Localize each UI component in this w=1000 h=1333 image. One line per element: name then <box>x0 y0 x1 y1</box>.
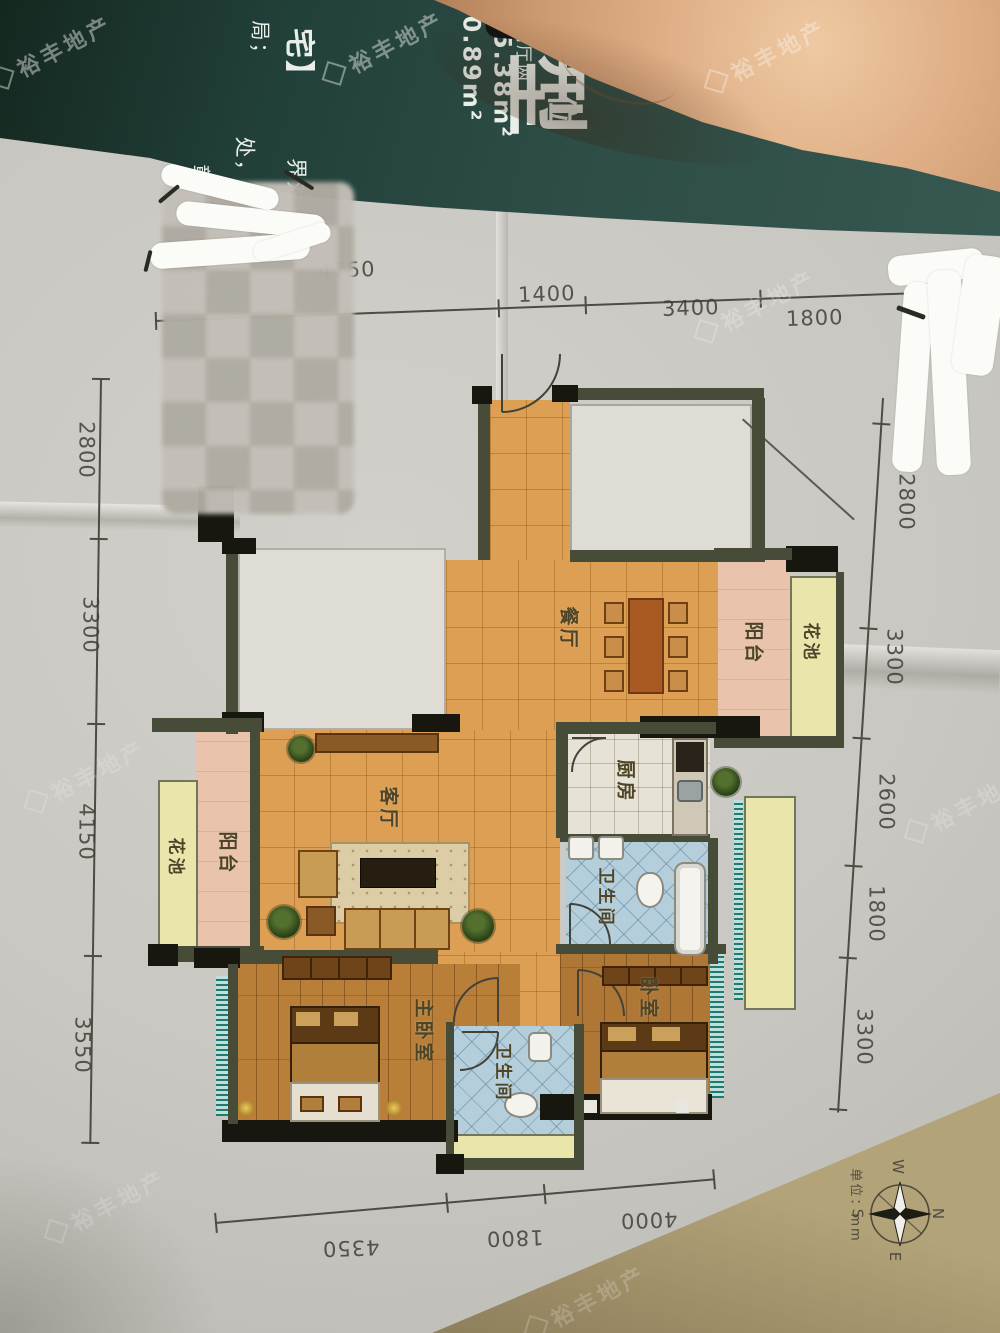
photo-of-floorplan-flyer: 彰显大家风范。 处，把酒言欢； 界对话无边园景； 局； 宅】 0.89m² 15… <box>0 0 1000 1333</box>
wardrobe <box>282 956 392 980</box>
wall <box>250 728 260 960</box>
label-bath-lower: 卫生间 <box>493 1043 518 1103</box>
bedroom-window <box>710 948 724 1098</box>
dim-right-2800: 2800 <box>895 473 919 530</box>
dim-right-2600: 2600 <box>875 773 899 830</box>
door-entrance-arc <box>500 352 562 414</box>
wall <box>556 722 568 838</box>
vanity-basin <box>568 836 594 860</box>
pillow <box>652 1027 680 1041</box>
coffee-table <box>360 858 436 888</box>
bed-blanket <box>600 1078 708 1114</box>
pillow <box>608 1027 636 1041</box>
pillow <box>296 1012 320 1026</box>
sideboard <box>315 733 439 753</box>
flowerbed-right-lower-strip <box>744 796 796 1010</box>
wall <box>556 388 764 400</box>
dining-chair <box>604 636 624 658</box>
wall <box>472 386 492 404</box>
dim-left-3550: 3550 <box>71 1016 95 1073</box>
banner-fragment-bracket: 宅】 <box>280 28 324 92</box>
bay-void-area <box>238 548 446 730</box>
compass-label-w: W <box>889 1159 907 1175</box>
wall <box>786 546 838 572</box>
stove <box>676 742 704 772</box>
dim-left-2800: 2800 <box>75 421 99 478</box>
label-master-bedroom: 主卧室 <box>412 998 439 1064</box>
potted-plant <box>268 906 300 938</box>
wall <box>446 1158 584 1170</box>
door-master-bedroom-arc <box>452 976 500 1024</box>
entry-hall-floor <box>490 400 570 562</box>
label-living: 客厅 <box>377 786 404 830</box>
unit-note: 单位：mm <box>848 1168 867 1242</box>
watermark-logo <box>0 65 15 90</box>
wall <box>446 1022 454 1164</box>
wall <box>222 1120 458 1142</box>
bathtub <box>674 862 706 956</box>
dining-chair <box>604 670 624 692</box>
label-kitchen: 厨房 <box>614 759 641 803</box>
armchair <box>298 850 338 898</box>
dim-top-1400: 1400 <box>518 281 576 307</box>
door-kitchen-arc <box>570 736 608 774</box>
dim-bottom-4350: 4350 <box>322 1235 380 1261</box>
dining-table <box>628 598 664 694</box>
bench <box>338 1096 362 1112</box>
vanity-basin <box>598 836 624 860</box>
label-balcony-right: 阳台 <box>742 621 769 665</box>
banner-fragment-top: 局； <box>248 21 277 65</box>
wall <box>556 722 716 734</box>
wall <box>436 1154 464 1174</box>
label-balcony-left: 阳台 <box>216 831 243 875</box>
downlight <box>386 1100 402 1116</box>
kitchen-side-window <box>734 800 743 1000</box>
dining-chair <box>668 602 688 624</box>
label-bath-upper: 卫生间 <box>596 868 621 928</box>
wall <box>714 548 792 560</box>
master-bay-window <box>216 976 228 1116</box>
wall <box>226 542 238 734</box>
wall <box>478 392 490 560</box>
wall <box>412 714 460 732</box>
dining-chair <box>668 636 688 658</box>
wall <box>148 944 178 966</box>
potted-plant <box>288 736 314 762</box>
dim-bottom-4000: 4000 <box>620 1207 678 1233</box>
bench <box>300 1096 324 1112</box>
kitchen-sink <box>677 780 703 802</box>
label-flowerbed-left: 花池 <box>166 838 191 878</box>
wall <box>836 572 844 748</box>
open-void-area <box>570 404 752 552</box>
wall <box>228 964 238 1124</box>
dim-left-4150: 4150 <box>75 803 99 860</box>
label-bedroom: 卧室 <box>637 976 664 1020</box>
toilet <box>636 872 664 908</box>
dim-right-1800: 1800 <box>865 885 889 942</box>
dim-right-3300: 3300 <box>883 628 907 685</box>
wall <box>574 1024 584 1164</box>
label-dining: 餐厅 <box>557 606 584 650</box>
wall <box>152 718 262 732</box>
watermark-logo <box>524 1315 549 1333</box>
side-table <box>306 906 336 936</box>
sofa <box>344 908 450 950</box>
basin <box>528 1032 552 1062</box>
dim-left-3300: 3300 <box>79 596 103 653</box>
compass-label-e: E <box>886 1252 904 1262</box>
downlight <box>238 1100 254 1116</box>
potted-plant <box>712 768 740 796</box>
wall-marker <box>676 1100 689 1113</box>
dim-bottom-1800: 1800 <box>486 1225 544 1251</box>
pillow <box>334 1012 358 1026</box>
wall <box>752 398 765 562</box>
dining-chair <box>604 602 624 624</box>
potted-plant <box>462 910 494 942</box>
dim-top-1800: 1800 <box>786 305 844 331</box>
bed-body <box>290 1044 380 1086</box>
compass-label-n: N <box>929 1208 947 1220</box>
dining-chair <box>668 670 688 692</box>
wall-marker <box>584 1100 597 1113</box>
dim-right-3300-b: 3300 <box>853 1008 877 1065</box>
label-flowerbed-right: 花池 <box>801 623 826 663</box>
